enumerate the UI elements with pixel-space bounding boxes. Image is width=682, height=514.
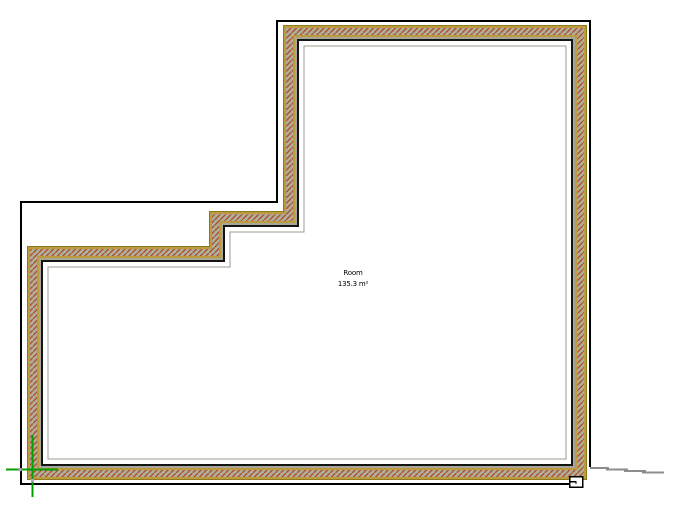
room-tag[interactable]: Room 135.3 m²: [338, 268, 368, 290]
drawing-canvas[interactable]: Room 135.3 m²: [0, 0, 682, 514]
grip-handle[interactable]: [18, 468, 21, 471]
room-area-label: 135.3 m²: [338, 279, 368, 290]
floor-plan-svg: [0, 0, 682, 514]
wall-hatch-core[interactable]: [30, 28, 584, 477]
room-name-label: Room: [338, 268, 368, 279]
grip-handle[interactable]: [31, 479, 34, 482]
